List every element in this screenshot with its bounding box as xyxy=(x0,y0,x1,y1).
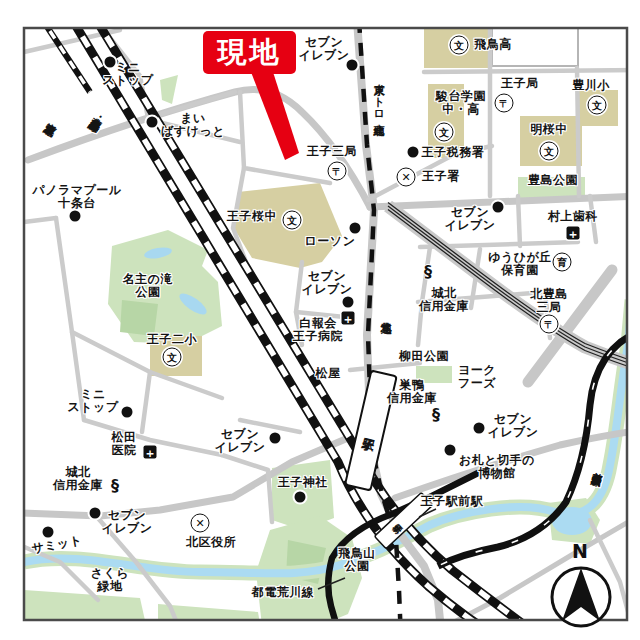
parks-layer xyxy=(24,75,600,636)
oji-station-box xyxy=(345,371,397,491)
compass-icon xyxy=(552,568,610,626)
compass-north-label: N xyxy=(572,540,588,562)
callout-pointer xyxy=(251,72,299,160)
genchi-callout: 現地 xyxy=(203,31,296,74)
map-canvas xyxy=(0,0,640,640)
